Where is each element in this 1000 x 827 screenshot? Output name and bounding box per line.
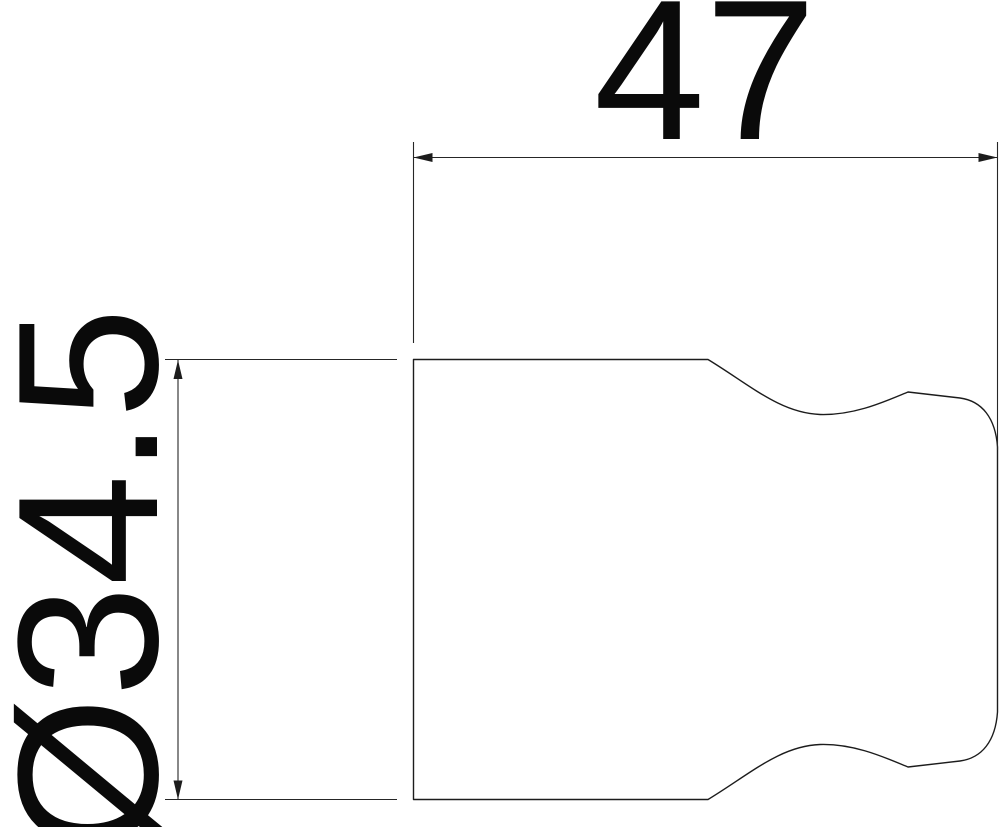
technical-drawing: 47 Ø34.5 [0,0,1000,827]
width-arrowhead-right [979,153,998,162]
width-dimension [414,142,998,450]
width-dimension-label: 47 [594,0,816,182]
part-outline [414,360,998,800]
width-arrowhead-left [414,153,433,162]
technical-drawing-canvas: 47 Ø34.5 [0,0,1000,827]
diameter-dimension-label: Ø34.5 [0,308,200,827]
